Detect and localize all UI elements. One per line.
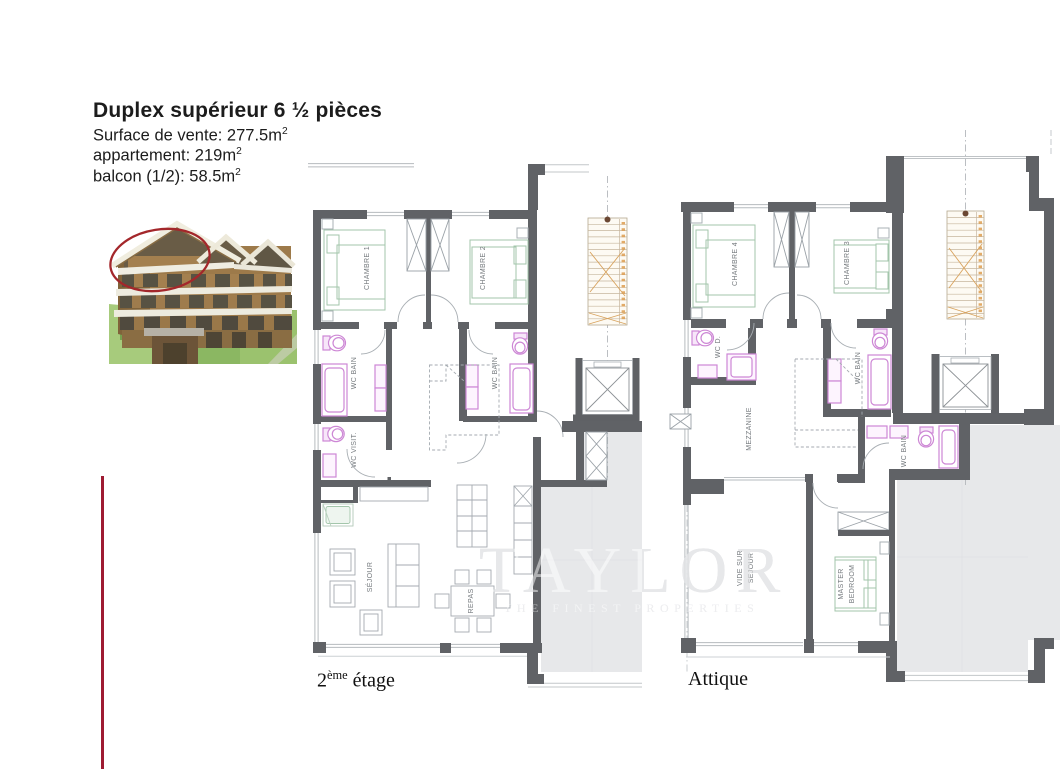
svg-text:WC D.: WC D. — [715, 336, 722, 358]
svg-text:MEZZANINE: MEZZANINE — [746, 407, 753, 451]
svg-text:MASTER: MASTER — [838, 568, 845, 599]
svg-text:BEDROOM: BEDROOM — [849, 565, 856, 604]
svg-text:CHAMBRE 2: CHAMBRE 2 — [480, 246, 487, 290]
svg-text:CHAMBRE 4: CHAMBRE 4 — [732, 242, 739, 286]
svg-text:SÉJOUR: SÉJOUR — [365, 562, 374, 593]
svg-text:WC BAIN: WC BAIN — [492, 357, 499, 389]
svg-text:REPAS: REPAS — [468, 589, 475, 614]
svg-text:WC BAIN: WC BAIN — [351, 357, 358, 389]
svg-text:CHAMBRE 1: CHAMBRE 1 — [364, 246, 371, 290]
svg-text:WC BAIN: WC BAIN — [901, 435, 908, 467]
svg-text:CHAMBRE 3: CHAMBRE 3 — [844, 241, 851, 285]
svg-text:WC VISIT.: WC VISIT. — [351, 432, 358, 467]
